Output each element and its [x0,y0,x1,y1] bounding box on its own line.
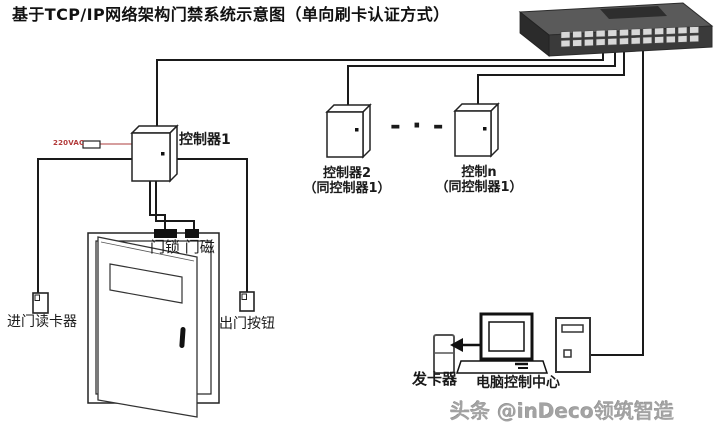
controllerN-label-line1: 控制n [424,165,534,180]
controller2-label-line1: 控制器2 [292,166,402,181]
diagram-canvas [0,0,720,434]
door-assembly [88,229,219,417]
controller2-box [327,105,370,157]
controllerN-box [455,104,498,156]
controller2-label-line2: （同控制器1） [292,181,402,196]
wire-controller1-door-magnet [156,181,194,229]
more-controllers-ellipsis: - · - [390,112,445,142]
controllerN-led [483,127,487,131]
keyboard-icon [457,361,547,373]
watermark: 头条 @inDeco领筑智造 [450,400,674,423]
exit-button-device [240,292,254,311]
card-issuer-device [434,335,454,373]
access-control-diagram: 基于TCP/IP网络架构门禁系统示意图（单向刷卡认证方式） 220VAC 控制器… [0,0,720,434]
tower-pc-icon [556,318,590,372]
controller1-box [132,126,177,181]
lock-magnet-label: 门锁 门磁 [150,239,215,256]
card-issuer-label: 发卡器 [412,371,457,388]
controllerN-label-line2: （同控制器1） [424,180,534,195]
controller2-label: 控制器2 （同控制器1） [292,166,402,196]
wire-switch-pc [572,44,643,355]
wire-switch-controller1 [157,44,603,131]
page-title: 基于TCP/IP网络架构门禁系统示意图（单向刷卡认证方式） [12,6,450,24]
controllerN-label: 控制n （同控制器1） [424,165,534,195]
network-switch-icon [520,3,712,56]
monitor-icon [481,314,532,359]
control-center-label: 电脑控制中心 [476,375,560,391]
controller1-led [161,152,165,156]
controller1-label: 控制器1 [179,132,231,148]
door-magnet-block [185,229,199,238]
power-label: 220VAC [53,139,84,147]
entry-reader-device [33,293,48,313]
door-lock-block [154,229,177,238]
exit-button-label: 出门按钮 [219,316,275,332]
entry-reader-label: 进门读卡器 [7,314,77,330]
controller2-led [355,128,359,132]
power-plug-icon [83,141,100,148]
